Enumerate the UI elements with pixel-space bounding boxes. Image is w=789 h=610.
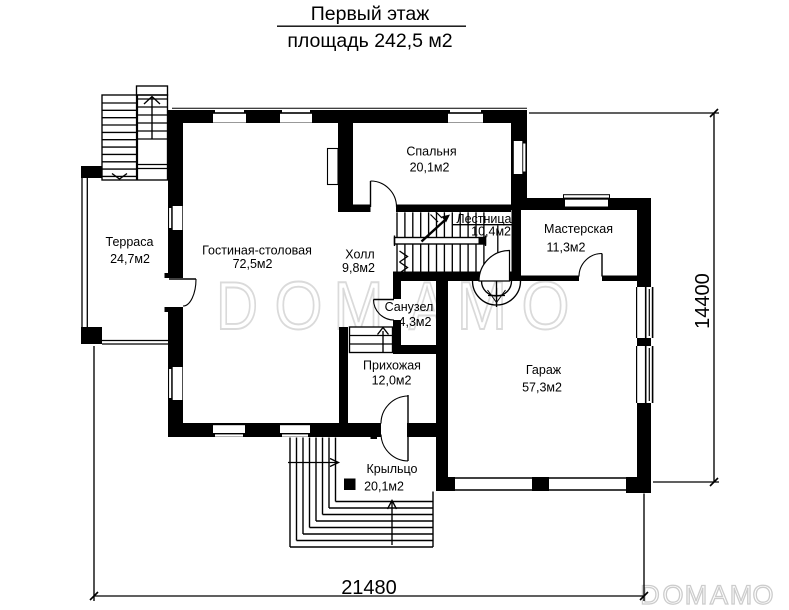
svg-text:D: D xyxy=(216,268,258,344)
svg-text:D: D xyxy=(640,580,660,610)
svg-text:Холл: Холл xyxy=(345,248,374,262)
svg-text:O: O xyxy=(662,580,683,610)
svg-text:площадь 242,5 м2: площадь 242,5 м2 xyxy=(287,30,452,52)
svg-text:20,1м2: 20,1м2 xyxy=(410,160,450,174)
svg-text:Крыльцо: Крыльцо xyxy=(367,462,418,476)
svg-text:M: M xyxy=(730,580,753,610)
svg-text:20,1м2: 20,1м2 xyxy=(364,480,404,494)
svg-text:Санузел: Санузел xyxy=(385,300,434,314)
svg-text:12,0м2: 12,0м2 xyxy=(372,374,412,388)
svg-text:Терраса: Терраса xyxy=(106,235,154,249)
svg-text:57,3м2: 57,3м2 xyxy=(522,381,562,395)
svg-text:24,7м2: 24,7м2 xyxy=(110,252,150,266)
svg-text:Гостиная-столовая: Гостиная-столовая xyxy=(202,244,312,258)
svg-text:14400: 14400 xyxy=(692,273,714,329)
svg-text:A: A xyxy=(710,580,728,610)
svg-text:10,4м2: 10,4м2 xyxy=(471,225,511,239)
svg-text:Гараж: Гараж xyxy=(526,363,562,377)
svg-text:Спальня: Спальня xyxy=(406,144,456,158)
svg-text:21480: 21480 xyxy=(341,577,397,599)
svg-text:Прихожая: Прихожая xyxy=(363,359,421,373)
svg-text:Первый этаж: Первый этаж xyxy=(311,3,430,25)
svg-text:O: O xyxy=(752,580,773,610)
svg-text:M: M xyxy=(685,580,708,610)
svg-text:Мастерская: Мастерская xyxy=(544,222,613,236)
svg-text:4,3м2: 4,3м2 xyxy=(399,315,432,329)
svg-text:9,8м2: 9,8м2 xyxy=(342,261,375,275)
svg-text:O: O xyxy=(275,268,323,344)
svg-text:72,5м2: 72,5м2 xyxy=(233,257,273,271)
svg-text:11,3м2: 11,3м2 xyxy=(547,241,586,255)
